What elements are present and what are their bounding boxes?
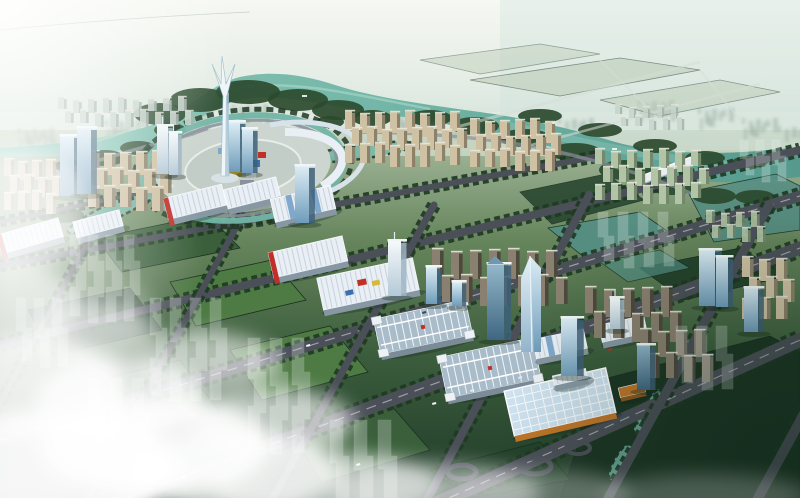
tower-cap [295,164,316,167]
residential-tower-roof [476,134,486,136]
residential-tower-roof [546,250,558,252]
residential-tower [476,135,483,151]
residential-tower-roof [643,106,650,108]
residential-tower-roof [390,111,400,113]
residential-tower [595,149,602,164]
residential-tower-roof [611,183,621,185]
residential-tower-roof [508,248,520,250]
tower-cap [388,239,407,242]
distant-building [785,129,789,142]
residential-tower [491,134,498,151]
residential-tower-roof [699,168,709,170]
residential-tower [643,186,650,204]
distant-building [766,120,770,127]
distant-building [719,112,722,121]
residential-tower-roof [435,112,445,114]
tower-side [309,168,315,223]
residential-tower-roof [649,118,656,120]
residential-tower [629,108,634,118]
residential-tower-shadow-face [634,153,637,168]
residential-tower-roof [619,165,629,167]
residential-tower-roof [643,149,653,151]
residential-tower-roof [675,151,685,153]
residential-tower-roof [470,150,480,152]
hall-pavilion [378,348,389,358]
residential-tower-shadow-face [464,131,467,148]
residential-tower-roof [382,129,392,131]
residential-tower [643,107,648,118]
residential-tower-shadow-face [412,147,415,167]
ghost-building [598,212,608,237]
residential-tower-shadow-face [382,145,385,163]
tower-body [426,267,437,304]
boat [612,148,617,150]
residential-tower [545,150,552,171]
residential-tower-roof [461,274,473,276]
residential-tower [450,146,457,165]
scene-canvas [0,0,800,498]
residential-tower [480,278,488,306]
residential-tower-roof [530,150,540,152]
residential-tower-roof [530,118,540,120]
distant-building [722,110,726,117]
distant-building [744,128,747,140]
distant-building [761,127,764,133]
tower-cap [426,265,443,268]
residential-tower [649,119,654,130]
residential-tower-roof [427,126,437,128]
residential-tower-shadow-face [522,154,525,171]
residential-tower-shadow-face [477,153,480,167]
residential-tower-roof [545,121,555,123]
residential-tower-roof [595,148,605,150]
residential-tower-roof [345,110,355,112]
residential-tower-shadow-face [620,107,622,114]
residential-tower-roof [450,145,460,147]
tower-body [452,282,462,306]
distant-building [754,129,759,137]
tower-side [253,131,258,173]
residential-tower [635,169,642,186]
residential-tower-shadow-face [658,170,661,186]
residential-tower-shadow-face [552,152,555,171]
residential-tower-shadow-face [554,253,558,277]
residential-tower-roof [675,183,685,185]
distant-building [572,119,577,130]
residential-tower-roof [651,167,661,169]
residential-tower-shadow-face [642,171,645,186]
distant-building [700,118,703,130]
residential-tower-shadow-face [666,151,669,168]
tower-side [504,266,511,340]
residential-tower [667,167,674,186]
residential-tower-shadow-face [602,187,605,200]
residential-tower [435,143,442,161]
residential-tower-roof [556,277,568,279]
residential-tower-roof [442,275,454,277]
tower-body [487,264,504,340]
residential-tower [635,116,640,126]
residential-tower [671,105,676,118]
residential-tower [515,152,522,171]
residential-tower-shadow-face [478,253,482,279]
residential-tower [619,166,626,182]
residential-tower [405,145,412,167]
residential-tower-shadow-face [545,277,549,306]
residential-tower-shadow-face [537,153,540,171]
residential-tower-roof [659,184,669,186]
residential-tower [420,144,427,167]
residential-tower-roof [551,133,561,135]
residential-tower-roof [470,250,482,252]
residential-tower-roof [485,149,495,151]
residential-tower-roof [521,135,531,137]
distant-building [756,119,761,130]
distant-building [698,108,701,114]
residential-tower-roof [621,116,628,118]
residential-tower [352,128,359,146]
residential-tower [405,111,412,133]
residential-tower-roof [397,128,407,130]
residential-tower [621,117,626,126]
residential-tower-roof [489,249,501,251]
forest-patch [518,109,562,123]
residential-tower-roof [345,144,355,146]
residential-tower-roof [412,127,422,129]
forest-patch [633,139,677,153]
residential-tower [659,149,666,168]
distant-building [742,118,745,124]
residential-tower-roof [442,129,452,131]
residential-tower-shadow-face [442,115,445,131]
residential-tower [699,169,706,184]
residential-tower-roof [643,185,653,187]
residential-tower-roof [420,113,430,115]
residential-tower-shadow-face [618,186,621,200]
residential-tower-roof [691,182,701,184]
residential-tower-shadow-face [698,153,701,166]
hall-pavilion [464,330,475,340]
residential-tower [546,251,554,277]
residential-tower-roof [527,251,539,253]
residential-tower [643,150,650,168]
residential-tower [345,145,352,163]
residential-tower-shadow-face [626,119,628,126]
residential-tower [450,112,457,131]
residential-tower-roof [627,182,637,184]
tower-cap [452,280,467,283]
residential-tower-shadow-face [397,148,400,167]
residential-tower-roof [405,144,415,146]
hall-pavilion [436,354,447,364]
residential-tower-roof [375,112,385,114]
residential-tower-roof [367,126,377,128]
residential-tower-shadow-face [602,151,605,164]
residential-tower [360,144,367,163]
residential-tower-roof [470,118,480,120]
residential-tower-shadow-face [706,171,709,184]
tower-body [242,129,253,173]
distant-building [778,126,781,132]
distant-building [792,127,797,138]
boat [302,95,307,97]
residential-tower-shadow-face [507,151,510,167]
residential-tower-shadow-face [682,119,684,130]
residential-tower-roof [485,121,495,123]
residential-tower-roof [635,168,645,170]
residential-tower-shadow-face [492,152,495,167]
residential-tower [500,149,507,167]
residential-tower-shadow-face [427,146,430,167]
residential-tower [627,183,634,200]
residential-tower-roof [457,128,467,130]
residential-tower-shadow-face [634,185,637,200]
residential-tower [470,151,477,167]
residential-tower-roof [615,104,622,106]
residential-tower-roof [360,113,370,115]
residential-tower-shadow-face [650,152,653,168]
tower-side [437,269,442,304]
residential-tower [603,167,610,182]
residential-tower-roof [405,110,415,112]
hall-pavilion [371,316,382,326]
residential-tower [530,151,537,171]
residential-tower-roof [515,119,525,121]
residential-tower-roof [536,134,546,136]
residential-tower-shadow-face [457,148,460,165]
residential-tower-roof [667,166,677,168]
residential-tower-roof [683,165,693,167]
residential-tower-shadow-face [626,168,629,182]
residential-tower-roof [506,136,516,138]
residential-tower [659,185,666,204]
residential-tower [397,129,404,150]
residential-tower [435,113,442,131]
distant-building [712,109,717,120]
residential-tower-roof [451,251,463,253]
residential-tower [412,128,419,150]
residential-tower-shadow-face [640,118,642,126]
residential-tower-roof [595,184,605,186]
residential-tower-roof [390,145,400,147]
residential-tower [677,117,682,130]
residential-row-group [595,148,709,204]
residential-tower-shadow-face [352,113,355,129]
tower-cap [242,127,259,130]
residential-tower-roof [420,143,430,145]
residential-tower [345,111,352,129]
residential-tower-roof [450,111,460,113]
residential-tower [442,276,450,302]
aerial-city-rendering [0,0,800,498]
residential-tower [595,185,602,200]
distant-building [773,118,778,132]
residential-tower [611,152,618,168]
residential-tower-roof [352,127,362,129]
residential-tower-roof [671,104,678,106]
tower-body [388,241,401,296]
residential-tower-shadow-face [650,188,653,204]
residential-tower-roof [611,151,621,153]
ghost-building [762,156,770,182]
residential-tower [691,151,698,166]
hall-red-dot [488,366,493,371]
residential-tower-shadow-face [469,277,473,302]
residential-tower-shadow-face [352,147,355,163]
cloud [190,388,354,456]
residential-tower-roof [545,149,555,151]
residential-tower-shadow-face [648,109,650,118]
residential-tower [651,168,658,186]
tower-side [462,284,466,306]
residential-tower-roof [603,166,613,168]
residential-tower-roof [635,115,642,117]
residential-tower-roof [627,150,637,152]
distant-building [710,119,715,127]
residential-tower-roof [663,117,670,119]
residential-tower-roof [515,151,525,153]
tower-cap [227,120,246,123]
residential-tower-shadow-face [666,187,669,204]
tower-body [295,166,309,223]
residential-tower [485,122,492,139]
residential-tower-shadow-face [477,121,480,135]
residential-tower-roof [432,248,444,250]
hall-red-dot [421,325,426,330]
residential-tower-roof [657,105,664,107]
residential-tower-roof [659,148,669,150]
residential-tower-shadow-face [654,121,656,130]
tower-side [401,243,406,296]
residential-tower-roof [435,142,445,144]
residential-tower-roof [360,143,370,145]
plaza-pavilion [258,152,266,158]
residential-tower-roof [629,107,636,109]
ghost-building [778,156,786,181]
residential-tower [551,134,558,155]
residential-tower-shadow-face [442,145,445,161]
forest-patch [352,110,392,126]
residential-tower [536,135,543,155]
residential-tower [611,184,618,200]
residential-tower-roof [491,133,501,135]
residential-tower [485,150,492,167]
residential-tower [663,118,668,130]
residential-tower-shadow-face [662,108,664,118]
residential-tower-roof [677,116,684,118]
residential-tower [470,119,477,135]
residential-tower [657,106,662,118]
residential-tower-roof [375,142,385,144]
residential-tower-shadow-face [668,120,670,130]
residential-tower-shadow-face [610,169,613,182]
residential-tower-shadow-face [558,136,561,155]
residential-tower [390,146,397,167]
residential-tower-roof [500,120,510,122]
residential-tower [375,143,382,163]
residential-tower [615,105,620,114]
residential-tower-roof [500,148,510,150]
residential-tower-shadow-face [367,146,370,163]
hall-pavilion [444,392,455,402]
residential-tower-roof [691,150,701,152]
ghost-building [746,156,754,175]
